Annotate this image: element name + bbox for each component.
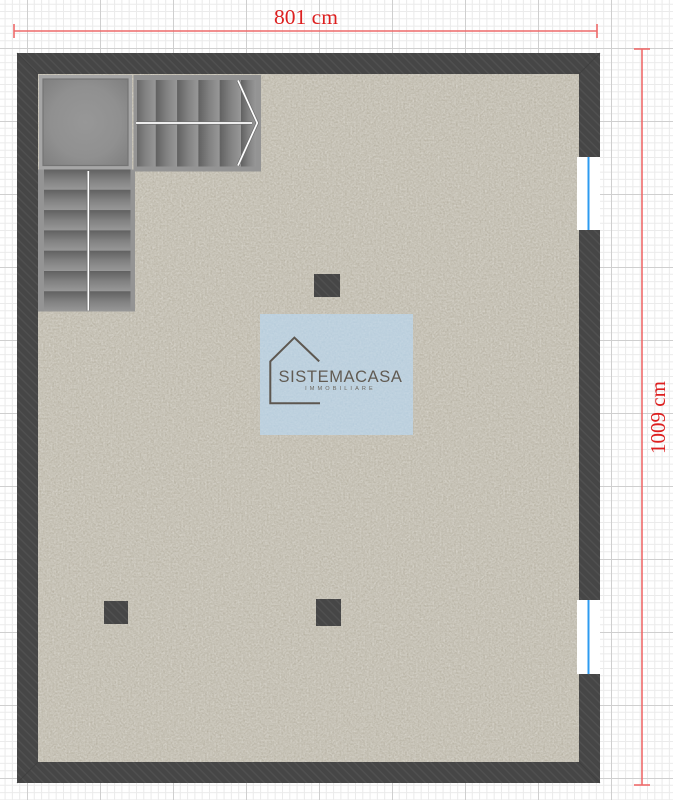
svg-text:1009 cm: 1009 cm	[646, 381, 670, 454]
svg-text:SISTEMACASA: SISTEMACASA	[279, 368, 403, 386]
svg-text:IMMOBILIARE: IMMOBILIARE	[305, 386, 376, 392]
svg-text:801 cm: 801 cm	[274, 5, 338, 29]
